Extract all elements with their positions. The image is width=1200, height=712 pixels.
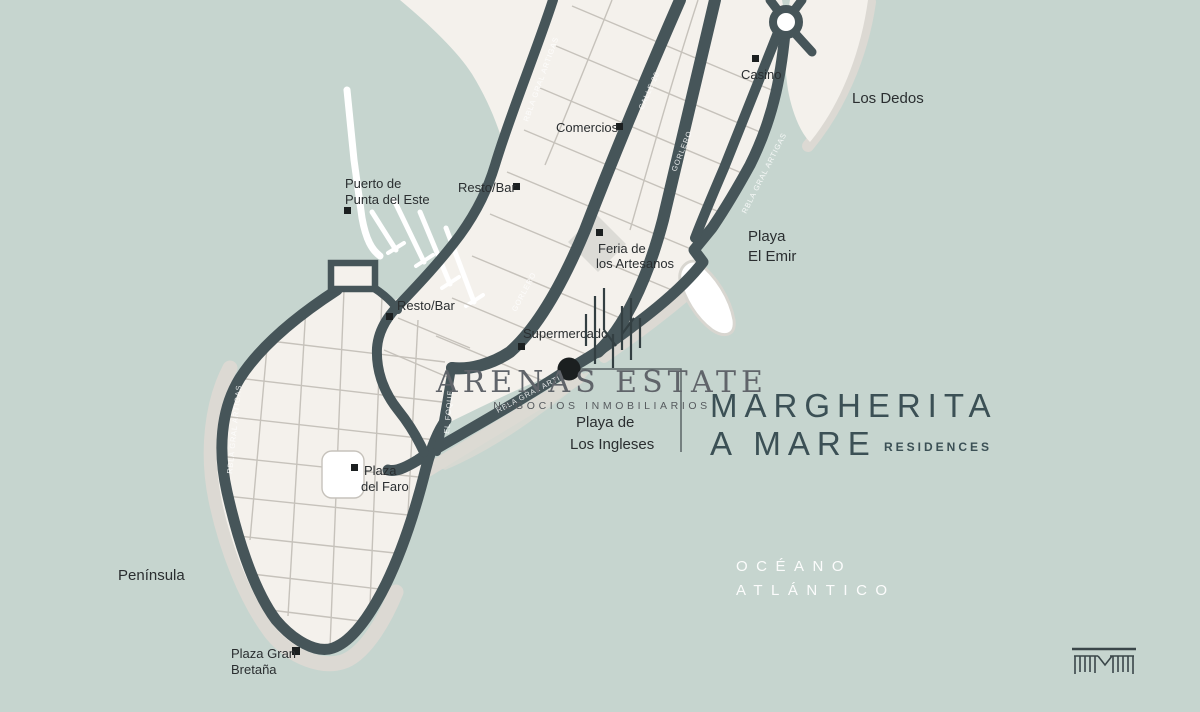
location-map: RBLA GRAL ARTIGAS CALLE 20 GORLERO RBLA … (0, 0, 1200, 712)
project-title-line2: A MARE (710, 425, 877, 462)
feria-marker (596, 229, 603, 236)
project-residences-label: RESIDENCES (884, 440, 992, 454)
puerto-label-1: Puerto de (345, 176, 401, 191)
project-title-line1: MARGHERITA (710, 387, 998, 424)
plaza-gb-label-1: Plaza Gran (231, 646, 296, 661)
ocean-label-1: OCÉANO (736, 558, 852, 575)
puerto-label-2: Punta del Este (345, 192, 430, 207)
casino-label: Casino (741, 67, 781, 82)
feria-label-1: Feria de (598, 241, 646, 256)
ocean-label-2: ATLÁNTICO (736, 582, 896, 599)
resto-bar-2-marker (386, 313, 393, 320)
plaza-faro-label-2: del Faro (361, 479, 409, 494)
roundabout (773, 9, 799, 35)
plaza-del-faro-block (322, 451, 364, 498)
plaza-faro-label-1: Plaza (364, 463, 397, 478)
plaza-faro-marker (351, 464, 358, 471)
los-dedos-label: Los Dedos (852, 90, 924, 107)
comercios-label: Comercios (556, 120, 619, 135)
feria-label-2: los Artesanos (596, 256, 675, 271)
supermercado-marker (518, 343, 525, 350)
playa-el-emir-label-2: El Emir (748, 248, 796, 265)
resto-bar-1-label: Resto/Bar (458, 180, 516, 195)
casino-marker (752, 55, 759, 62)
playa-ingleses-label-2: Los Ingleses (570, 436, 654, 453)
plaza-gb-label-2: Bretaña (231, 662, 277, 677)
arenas-tagline: NEGOCIOS INMOBILIARIOS (493, 400, 710, 412)
puerto-marker (344, 207, 351, 214)
peninsula-label: Península (118, 567, 185, 584)
playa-ingleses-label-1: Playa de (576, 414, 634, 431)
resto-bar-2-label: Resto/Bar (397, 298, 455, 313)
playa-el-emir-label-1: Playa (748, 228, 786, 245)
